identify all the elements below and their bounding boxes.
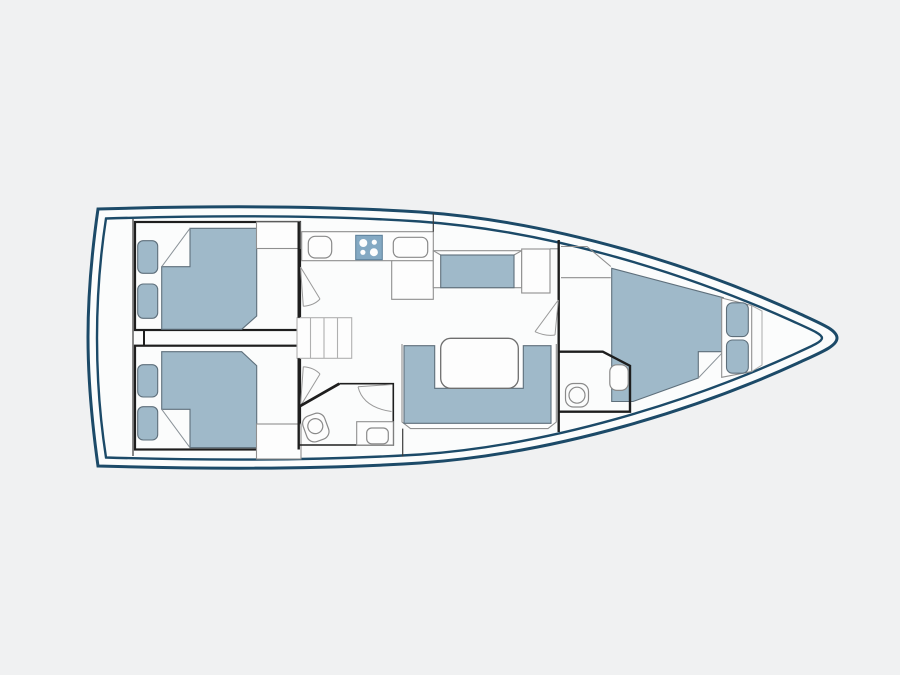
berth-cushion-icon — [727, 340, 749, 373]
berth-cushion-icon — [727, 303, 749, 337]
salon-bench — [433, 251, 521, 288]
burner — [360, 250, 365, 255]
salon-table-icon — [441, 338, 519, 388]
salon-bench-settee-icon — [441, 255, 514, 288]
berth-cushion-icon — [138, 241, 158, 274]
head-sink-icon — [610, 365, 628, 391]
yacht-floor-plan — [0, 0, 900, 675]
wardrobe-locker-icon — [257, 222, 301, 249]
berth-cushion-icon — [138, 407, 158, 440]
burner — [372, 240, 377, 245]
nav-table-icon — [522, 249, 550, 293]
salon-dinette — [402, 338, 556, 428]
burner — [370, 248, 378, 256]
wardrobe-locker-icon — [257, 424, 302, 459]
stove-four-burner-icon — [356, 235, 383, 259]
berth-cushion-icon — [138, 284, 158, 318]
counter-appliance-icon — [393, 237, 427, 257]
galley-sink-icon — [308, 236, 331, 258]
burner — [359, 239, 367, 247]
companionway — [297, 318, 352, 359]
berth-cushion-icon — [138, 365, 158, 397]
floor-plan-canvas — [0, 0, 900, 675]
